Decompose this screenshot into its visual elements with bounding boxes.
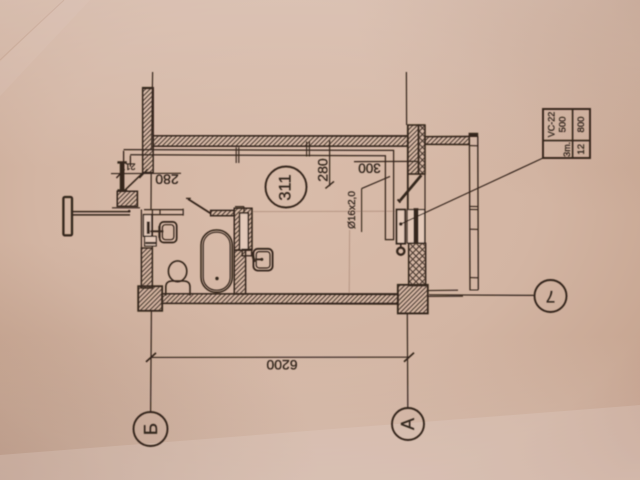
svg-text:12: 12 <box>576 144 587 155</box>
svg-text:280: 280 <box>315 158 331 182</box>
svg-text:7: 7 <box>546 287 555 306</box>
svg-text:A: A <box>398 418 418 430</box>
svg-text:VC-22: VC-22 <box>547 112 557 138</box>
svg-text:300: 300 <box>358 160 381 175</box>
svg-text:3m.: 3m. <box>562 142 572 157</box>
svg-text:800: 800 <box>576 116 587 132</box>
svg-text:280: 280 <box>155 172 179 188</box>
svg-text:500: 500 <box>558 116 569 132</box>
svg-text:311: 311 <box>277 174 295 200</box>
svg-text:Б: Б <box>140 423 161 435</box>
svg-text:6200: 6200 <box>266 357 297 373</box>
svg-text:21: 21 <box>125 162 135 172</box>
svg-text:Ø16x2,0: Ø16x2,0 <box>347 191 358 229</box>
